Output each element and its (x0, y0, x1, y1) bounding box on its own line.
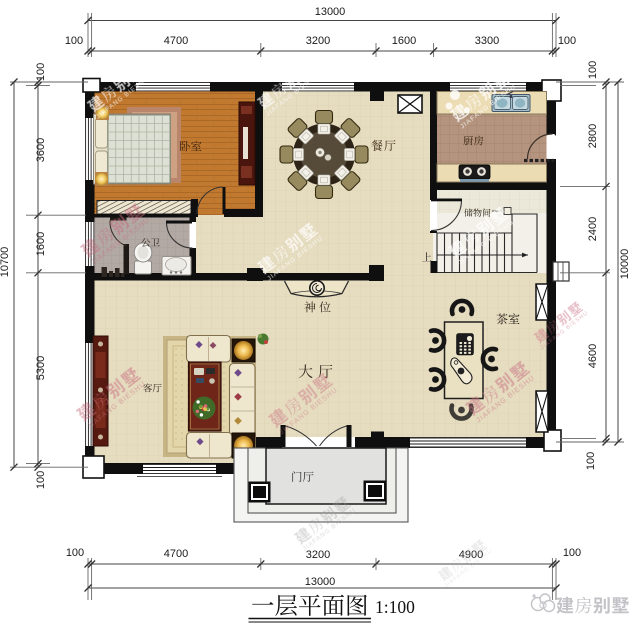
svg-text:3200: 3200 (306, 549, 330, 561)
svg-text:10000: 10000 (619, 249, 631, 280)
svg-text:100: 100 (35, 63, 47, 81)
svg-text:100: 100 (558, 35, 576, 47)
svg-text:3600: 3600 (35, 138, 47, 162)
svg-text:2400: 2400 (587, 217, 599, 241)
svg-text:3300: 3300 (475, 35, 499, 47)
svg-text:100: 100 (587, 61, 599, 79)
svg-text:100: 100 (65, 35, 83, 47)
svg-text:4600: 4600 (587, 344, 599, 368)
svg-text:1600: 1600 (392, 35, 416, 47)
svg-text:100: 100 (563, 547, 581, 559)
svg-text:10700: 10700 (0, 247, 11, 278)
svg-text:1600: 1600 (35, 232, 47, 256)
svg-text:4700: 4700 (164, 35, 188, 47)
svg-text:2800: 2800 (587, 124, 599, 148)
svg-text:5300: 5300 (35, 356, 47, 380)
svg-text:1:100: 1:100 (375, 597, 415, 617)
svg-text:13000: 13000 (305, 576, 336, 588)
svg-text:100: 100 (585, 452, 597, 470)
svg-text:4700: 4700 (164, 548, 188, 560)
svg-text:13000: 13000 (315, 6, 346, 18)
svg-text:3200: 3200 (306, 35, 330, 47)
svg-text:100: 100 (35, 471, 47, 489)
svg-text:100: 100 (66, 547, 84, 559)
